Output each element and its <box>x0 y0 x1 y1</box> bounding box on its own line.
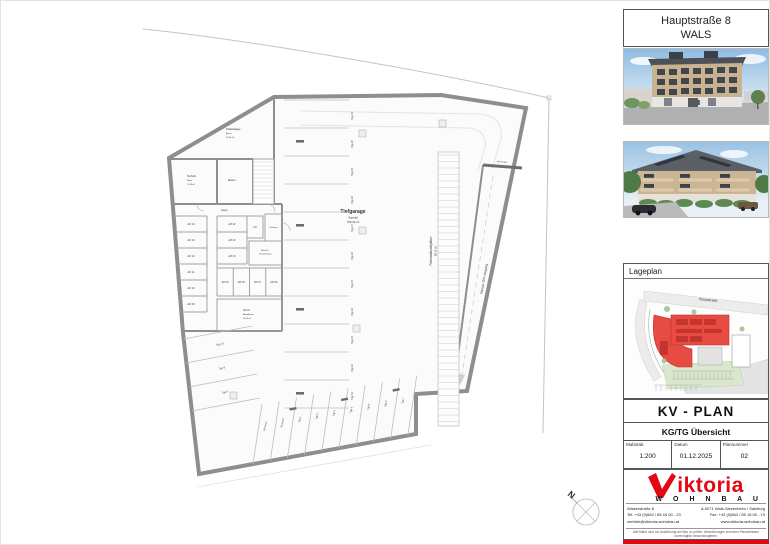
plan-disclaimer: Alle Maße sind vor Ausführung am Bau zu … <box>624 529 768 538</box>
room-label: Schleuse <box>269 227 278 229</box>
parking-stall-label: Tgp 13 <box>351 336 354 344</box>
field-value: 01.12.2025 <box>672 453 719 460</box>
garage-outer-wall <box>169 95 526 474</box>
building-photo-1 <box>623 48 769 125</box>
room-label: AR 08 <box>270 281 278 284</box>
field-datum: Datum 01.12.2025 <box>672 441 720 469</box>
parking-stall-label: Tgp 17 <box>351 224 354 232</box>
building-photo-1-image <box>624 49 768 124</box>
field-value: 02 <box>721 453 768 460</box>
field-label: Datum <box>674 442 687 447</box>
company-logo-box: iktoria W O H N B A U Walserstraße 8 Tel… <box>623 469 769 540</box>
bike-area: 58,75 m² <box>434 246 438 256</box>
plan-subtitle: KG/TG Übersicht <box>624 423 768 441</box>
project-city: WALS <box>624 29 768 41</box>
parking-stall-label: Tgp 20 <box>351 140 354 148</box>
lageplan-label: Lageplan <box>624 264 768 279</box>
room-label: 12,34 m² <box>187 183 195 186</box>
floor-plan-area: Rampe 15% Neigung Sektionaltor Fahrradab… <box>1 1 615 545</box>
company-sub-name: W O H N B A U <box>624 496 768 503</box>
project-street: Hauptstraße 8 <box>624 15 768 27</box>
parking-stall-label: Tgp 21 <box>351 112 354 120</box>
contact-email[interactable]: vertrieb@viktoria-wohnbau.at <box>627 519 681 525</box>
staircase <box>253 159 274 204</box>
company-contacts: Walserstraße 8 Tel. +43 (0)662 / 85 16 0… <box>624 504 768 526</box>
parking-stall-label: Tgp 19 <box>351 168 354 176</box>
room-label: Technik <box>187 174 196 178</box>
garage-surface: Asphalt <box>348 216 358 220</box>
room-label: Pelletslager <box>226 127 241 131</box>
building-photo-2 <box>623 141 769 218</box>
contact-web[interactable]: www.viktoria-wohnbau.at <box>701 519 765 525</box>
room-label: AR 10 <box>187 286 195 290</box>
room-label: Beton <box>187 179 192 182</box>
field-plannummer: Plannummer 02 <box>721 441 768 469</box>
parking-stall-label: Tgp 12 <box>351 364 354 372</box>
room-label: AR 04 <box>228 254 236 258</box>
plan-type: KV - PLAN <box>624 400 768 423</box>
room-label: Wasch-/ <box>261 250 269 252</box>
title-block: KV - PLAN KG/TG Übersicht Maßstab 1:200 … <box>623 399 769 469</box>
room-label: 16,06 m² <box>243 317 251 320</box>
room-label: AR 03 <box>228 238 236 242</box>
room-label: Elektro <box>228 179 236 182</box>
plan-sheet: Rampe 15% Neigung Sektionaltor Fahrradab… <box>0 0 770 545</box>
room-label: Beton <box>226 132 232 135</box>
bike-label: Fahrradabstellplätze <box>429 236 433 265</box>
room-label: AR 14 <box>187 222 195 226</box>
room-label: AR 07 <box>254 281 262 284</box>
room-label: AR 11 <box>187 270 195 274</box>
room-label: AR 01 <box>243 309 250 312</box>
room-label: Lift <box>253 226 257 229</box>
viktoria-v-icon <box>648 473 676 498</box>
plan-meta-row: Maßstab 1:200 Datum 01.12.2025 Plannumme… <box>624 441 768 469</box>
room-label: AR 05 <box>222 281 230 284</box>
title-sidebar: Hauptstraße 8 WALS <box>623 1 769 545</box>
parking-stall-label: Tgp 16 <box>351 252 354 260</box>
parking-stall-label: Tgp 18 <box>351 196 354 204</box>
room-label: AR 09 <box>187 302 195 306</box>
room-label: AR 06 <box>238 281 246 284</box>
site-plan-box: Lageplan Hauptstraße <box>623 263 769 399</box>
field-value: 1:200 <box>624 453 671 460</box>
room-label: AR 02 <box>228 222 236 226</box>
company-logo: iktoria W O H N B A U <box>624 470 768 501</box>
site-plan: Hauptstraße <box>624 279 768 394</box>
brand-red-bar <box>623 540 769 544</box>
room-label: AR 13 <box>187 238 195 242</box>
room-label: Gang <box>221 208 228 212</box>
north-arrow: N <box>566 489 599 525</box>
project-title-box: Hauptstraße 8 WALS <box>623 9 769 47</box>
room-label: Abstellraum <box>243 313 254 316</box>
company-name: iktoria <box>677 474 744 497</box>
parking-stall-label: Tgp 11 <box>351 392 354 400</box>
north-label: N <box>566 489 577 501</box>
building-photo-2-image <box>624 142 768 217</box>
field-massstab: Maßstab 1:200 <box>624 441 672 469</box>
contact-tel: Tel. +43 (0)662 / 85 16 00 - 23 <box>627 512 681 518</box>
parking-stall-label: Tgp 15 <box>351 280 354 288</box>
field-label: Maßstab <box>626 442 644 447</box>
floor-plan: Rampe 15% Neigung Sektionaltor Fahrradab… <box>1 1 615 545</box>
garage-area: 795,43 m² <box>347 220 360 224</box>
room-label: AR 12 <box>187 254 195 258</box>
room-label: Trockenraum <box>259 253 272 256</box>
contact-fax: Fax: +43 (0)662 / 85 16 00 - 19 <box>701 512 765 518</box>
parking-stall-label: Tgp 14 <box>351 308 354 316</box>
room-label: 33,40 m² <box>226 136 235 139</box>
field-label: Plannummer <box>723 442 749 447</box>
